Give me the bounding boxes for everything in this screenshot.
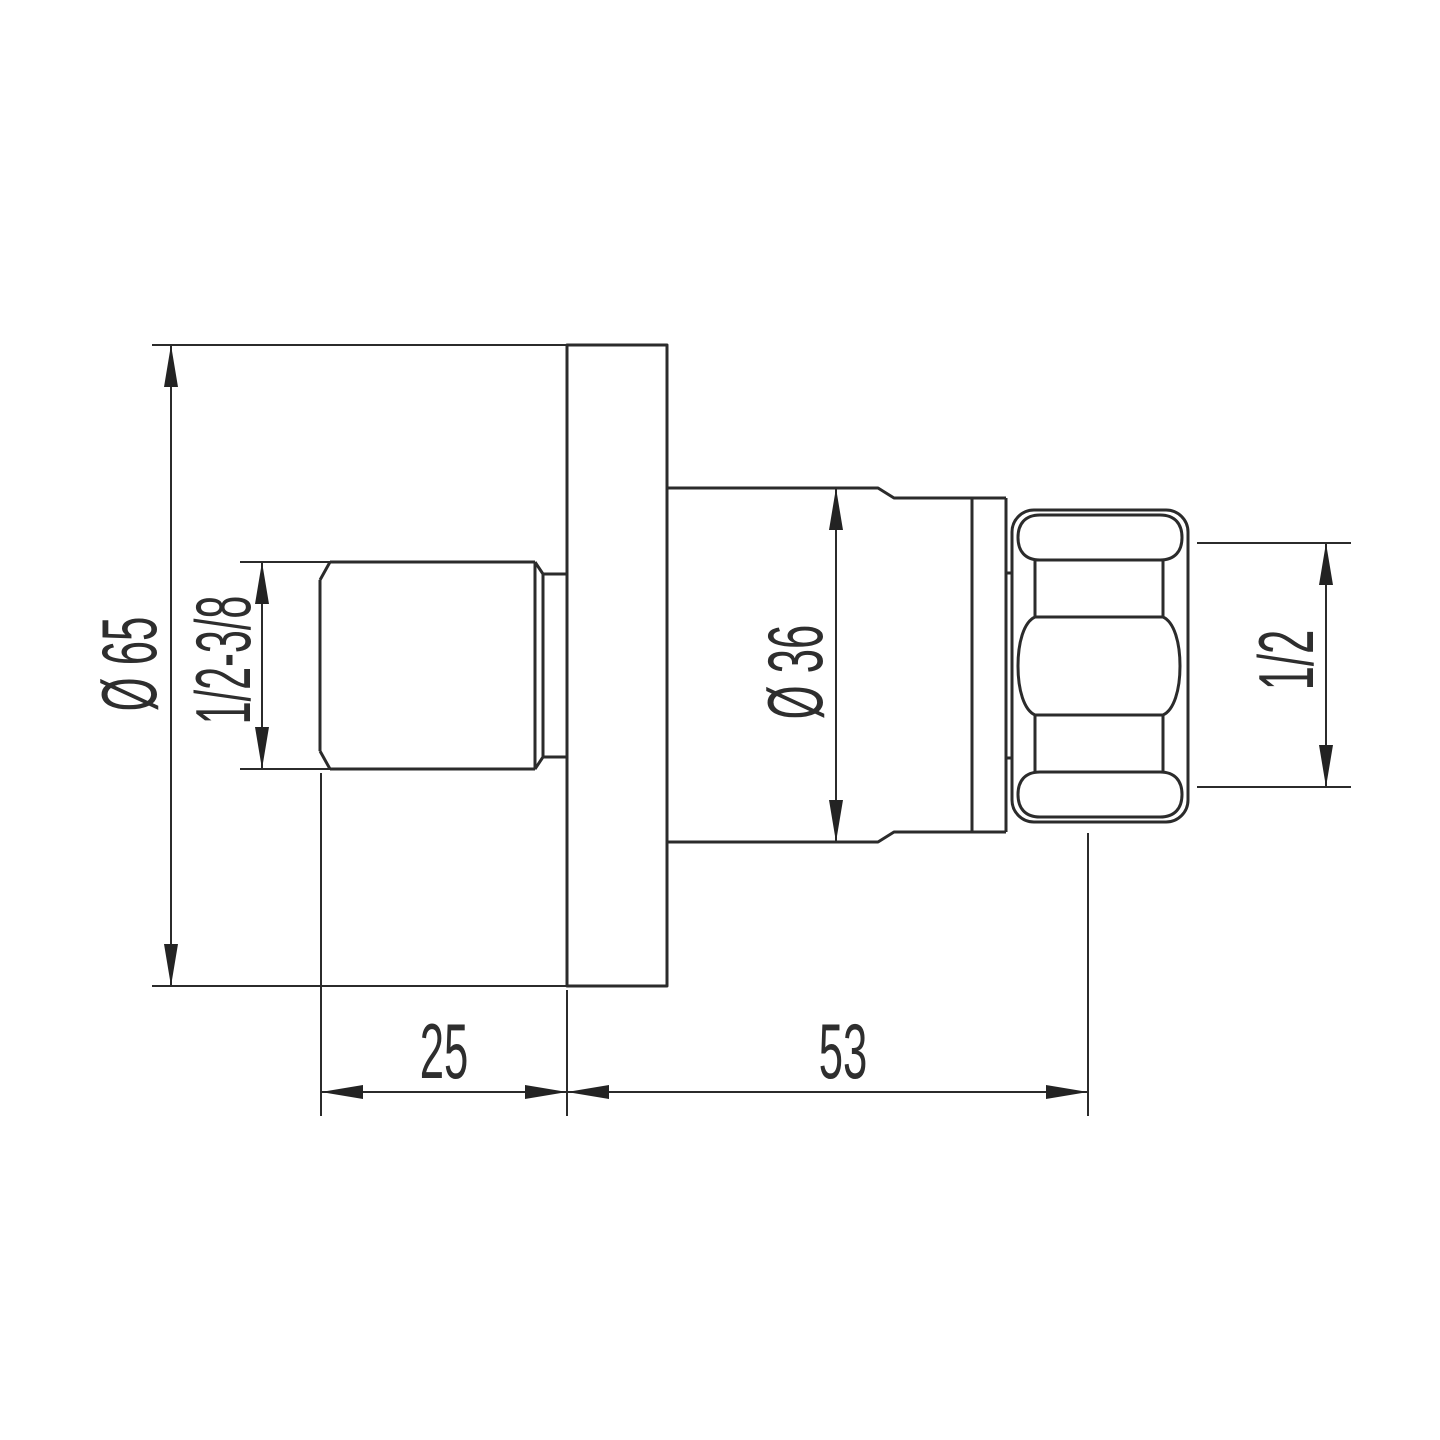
dimension-body-length: 53 [567, 833, 1088, 1116]
hex-nut-middle-arcs [1018, 617, 1180, 715]
nipple-outline [320, 562, 567, 769]
dimension-body-diameter: Ø 36 [753, 488, 843, 842]
arrowhead-down-icon [1319, 745, 1333, 787]
dimension-inlet-thread: 1/2-3/8 [180, 562, 330, 769]
dimension-outlet-thread: 1/2 [1197, 543, 1351, 787]
drawing-canvas: Ø 65 1/2-3/8 Ø 36 1/2 [0, 0, 1440, 1440]
arrowhead-up-icon [1319, 543, 1333, 585]
arrowhead-up-icon [164, 345, 178, 387]
dimension-label-flange-diameter: Ø 65 [87, 617, 173, 712]
flange-outline [567, 345, 667, 986]
dimension-flange-offset: 25 [321, 773, 567, 1116]
arrowhead-left-icon [567, 1085, 609, 1099]
hex-nut-top-chamfer [1018, 515, 1182, 560]
arrowhead-right-icon [525, 1085, 567, 1099]
hex-nut-bottom-chamfer [1018, 772, 1182, 817]
dimension-label-body-diameter: Ø 36 [753, 625, 839, 720]
arrowhead-right-icon [1046, 1085, 1088, 1099]
dimension-flange-diameter: Ø 65 [87, 345, 567, 986]
arrowhead-down-icon [829, 800, 843, 842]
hex-nut-face-edges [1035, 560, 1163, 772]
dimension-label-body-length: 53 [819, 1009, 868, 1095]
arrowhead-left-icon [321, 1085, 363, 1099]
dimension-label-flange-offset: 25 [420, 1009, 469, 1095]
technical-drawing-svg: Ø 65 1/2-3/8 Ø 36 1/2 [0, 0, 1440, 1440]
arrowhead-down-icon [255, 727, 269, 769]
hex-nut-outline [1012, 510, 1188, 822]
arrowhead-up-icon [829, 488, 843, 530]
arrowhead-down-icon [164, 944, 178, 986]
dimension-label-outlet-thread: 1/2 [1244, 630, 1330, 691]
body-outline [667, 488, 1012, 842]
dimension-label-inlet-thread: 1/2-3/8 [180, 596, 267, 725]
